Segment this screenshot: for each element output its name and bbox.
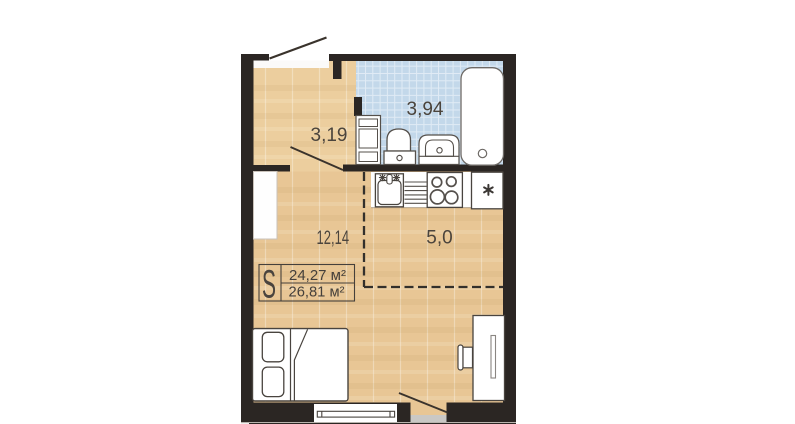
svg-text:26,81 м²: 26,81 м² (289, 285, 345, 301)
svg-text:3,19: 3,19 (311, 125, 348, 146)
svg-text:12,14: 12,14 (317, 228, 350, 249)
svg-text:S: S (262, 263, 276, 307)
svg-text:5,0: 5,0 (426, 228, 452, 249)
svg-text:3,94: 3,94 (407, 99, 444, 120)
svg-text:24,27 м²: 24,27 м² (289, 268, 346, 284)
